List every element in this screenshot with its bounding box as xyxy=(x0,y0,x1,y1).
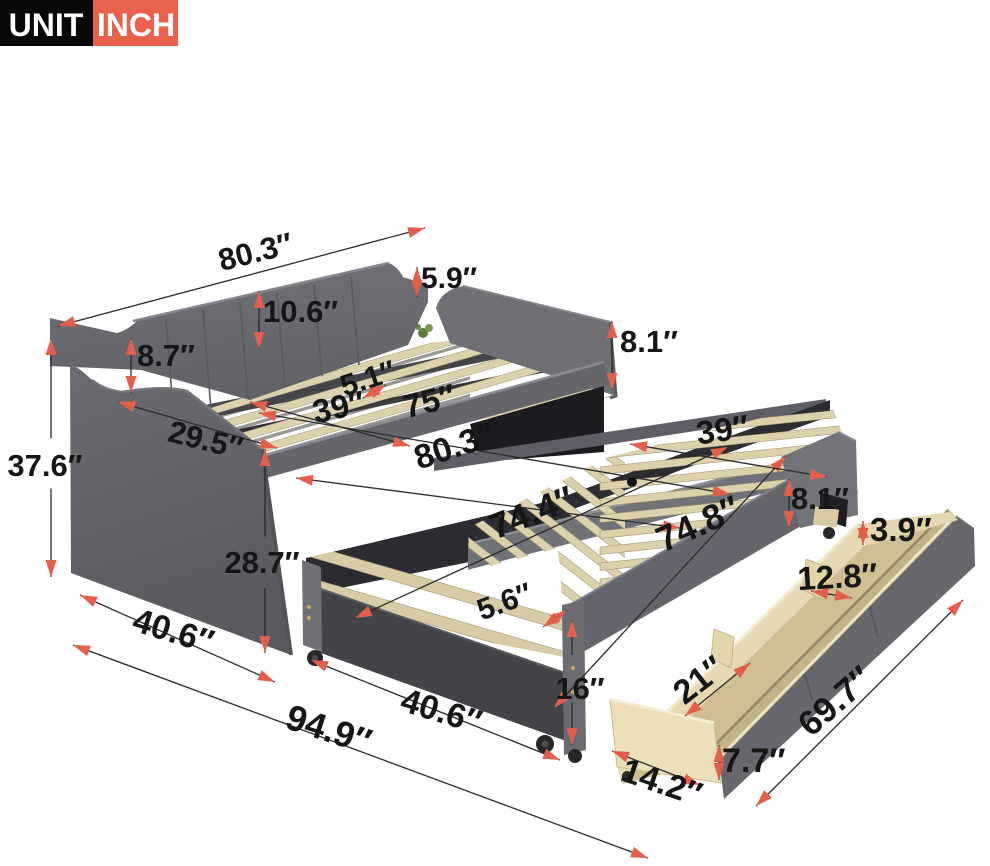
svg-text:28.7″: 28.7″ xyxy=(224,545,299,580)
svg-text:16″: 16″ xyxy=(555,671,604,706)
svg-text:INCH: INCH xyxy=(97,7,175,43)
svg-text:8.7″: 8.7″ xyxy=(137,338,195,373)
svg-text:37.6″: 37.6″ xyxy=(7,448,82,483)
svg-text:5.9″: 5.9″ xyxy=(421,262,477,295)
svg-text:39″: 39″ xyxy=(694,408,751,452)
svg-text:8.1″: 8.1″ xyxy=(620,324,678,359)
svg-text:10.6″: 10.6″ xyxy=(263,294,338,329)
svg-text:12.8″: 12.8″ xyxy=(796,556,878,597)
svg-text:3.9″: 3.9″ xyxy=(870,511,932,548)
svg-text:7.7″: 7.7″ xyxy=(722,742,786,780)
svg-text:8.1″: 8.1″ xyxy=(791,481,849,516)
svg-text:UNIT: UNIT xyxy=(9,7,84,43)
